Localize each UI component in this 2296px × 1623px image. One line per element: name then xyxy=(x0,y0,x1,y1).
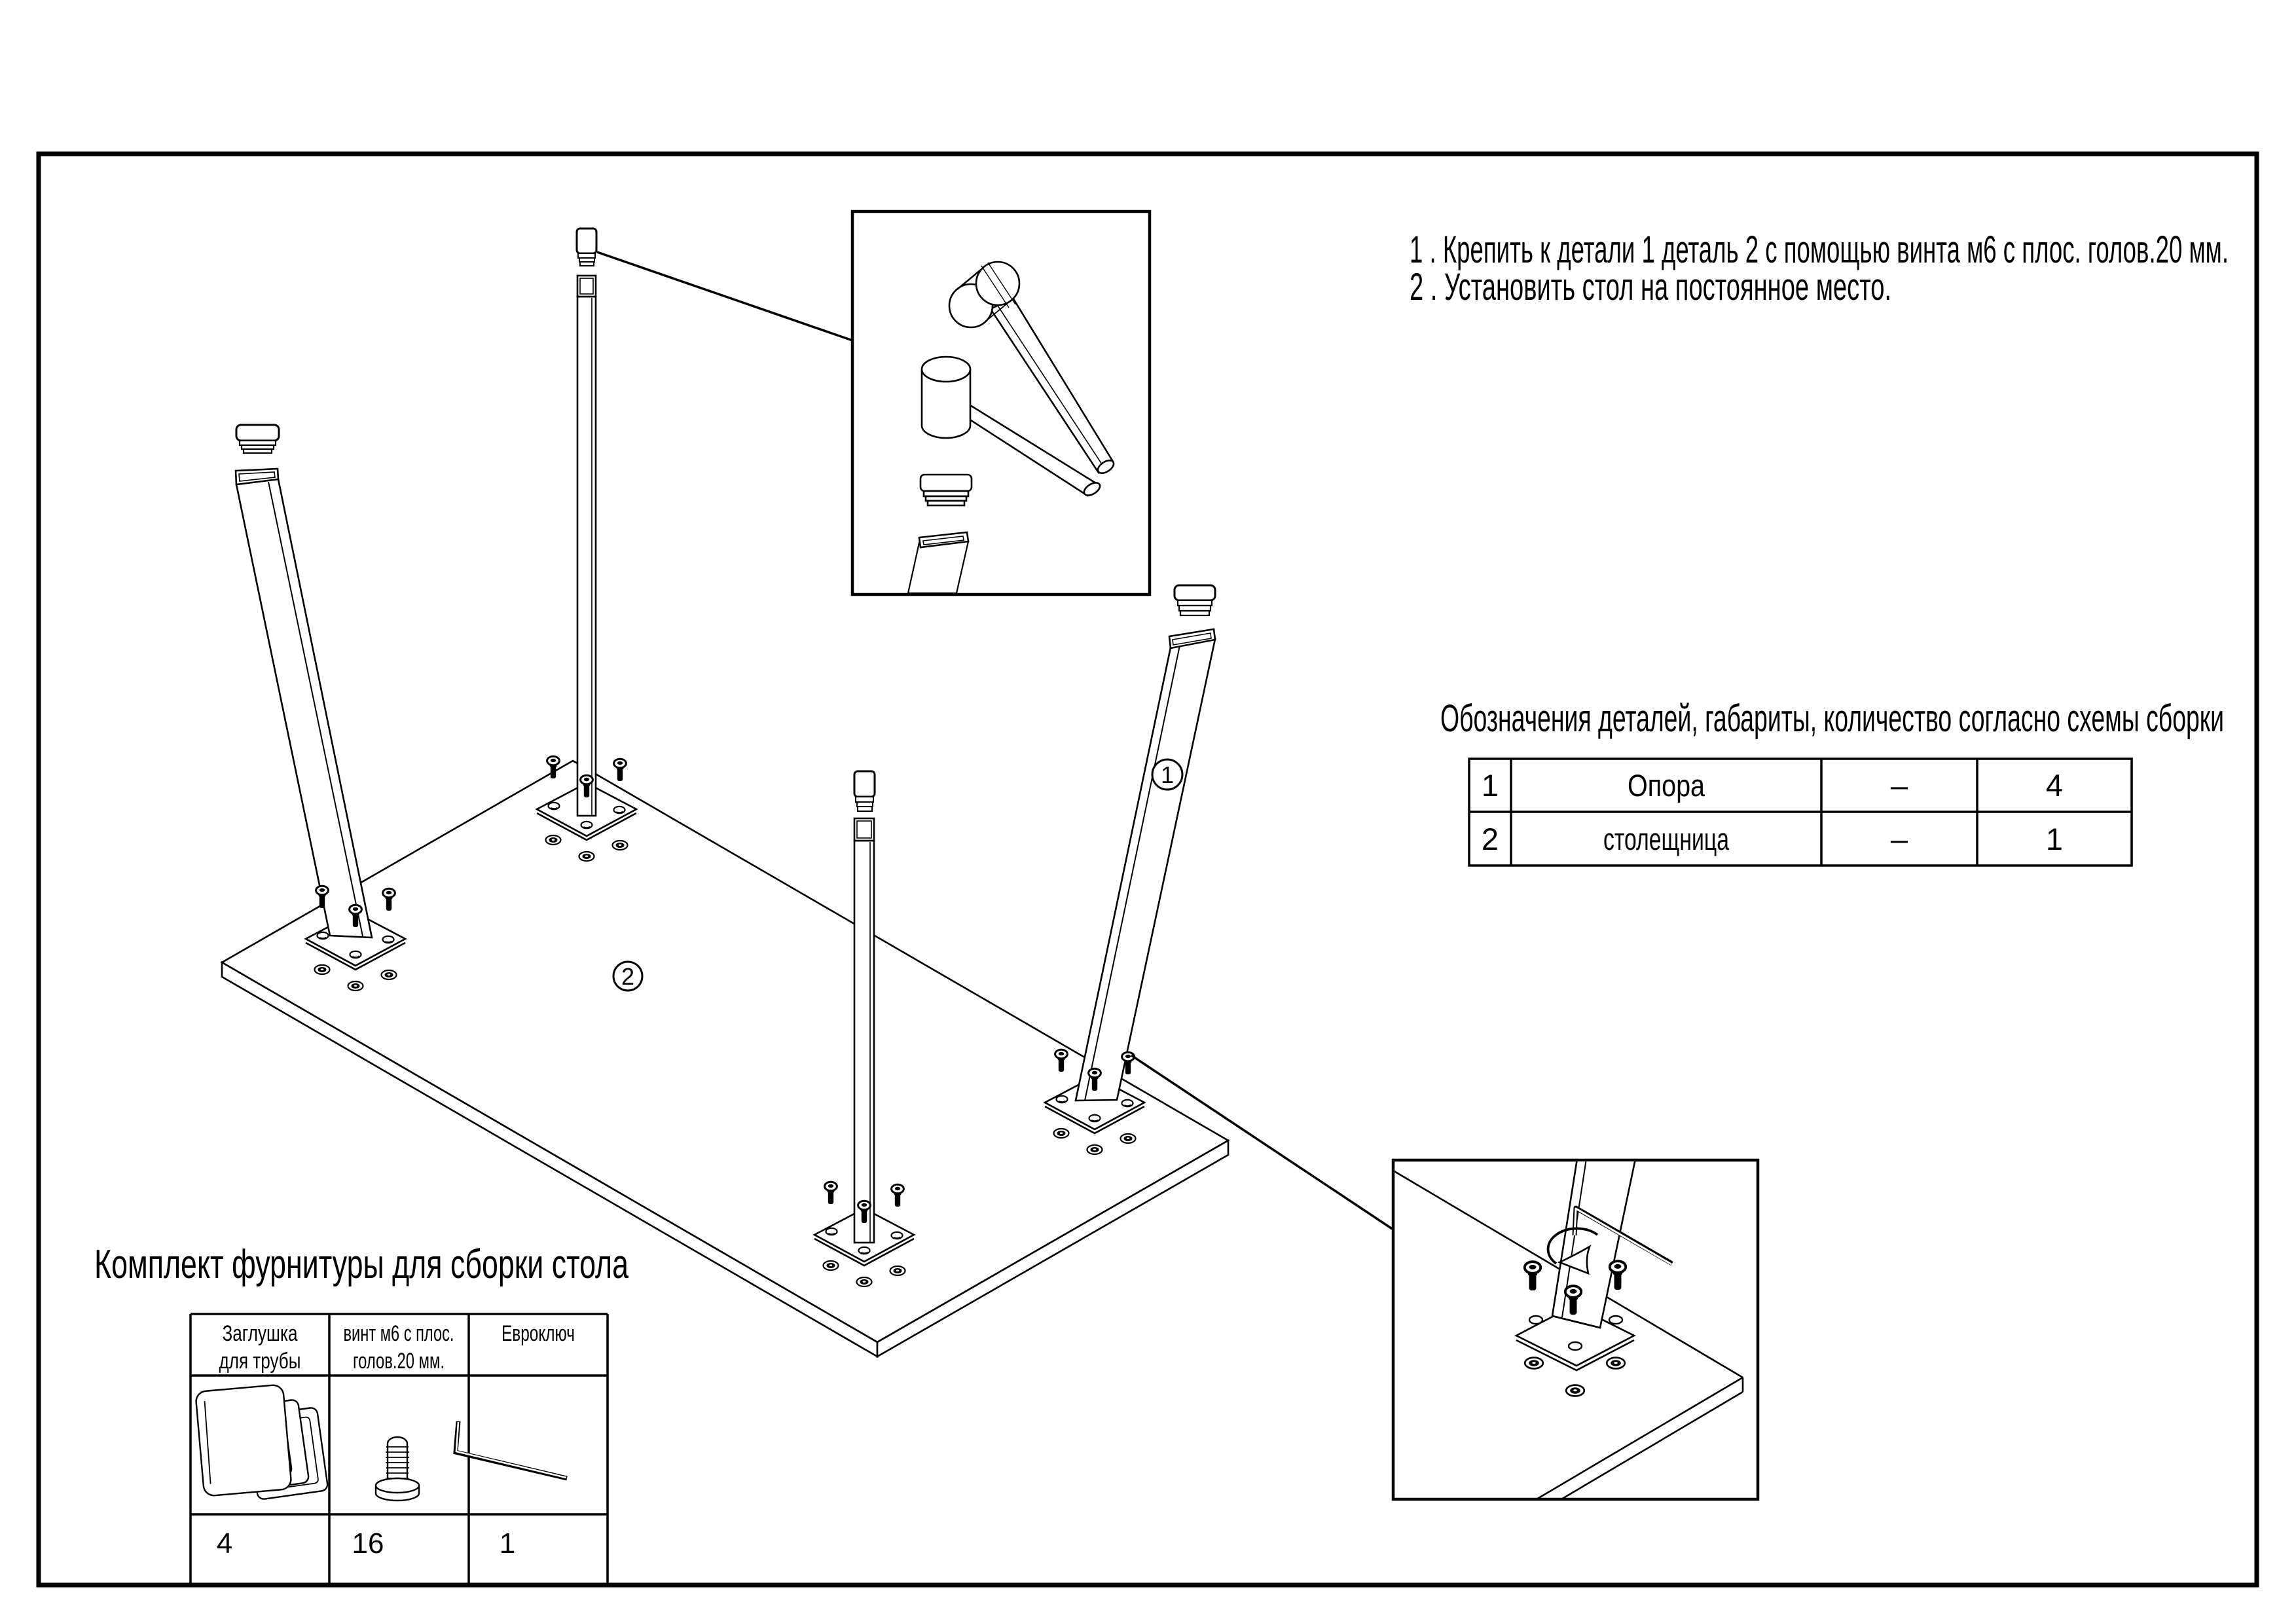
svg-text:1: 1 xyxy=(500,1527,515,1559)
svg-text:1: 1 xyxy=(2046,822,2063,856)
svg-text:16: 16 xyxy=(352,1527,384,1559)
svg-text:2 . Установить стол на постоян: 2 . Установить стол на постоянное место. xyxy=(1410,266,1891,308)
svg-text:1 . Крепить к детали 1 деталь: 1 . Крепить к детали 1 деталь 2 с помощь… xyxy=(1410,228,2229,271)
svg-text:Заглушка: Заглушка xyxy=(223,1321,298,1346)
svg-text:Евроключ: Евроключ xyxy=(501,1321,575,1346)
svg-text:1: 1 xyxy=(1161,761,1174,788)
svg-text:2: 2 xyxy=(621,963,634,990)
svg-text:столещница: столещница xyxy=(1603,822,1730,856)
svg-text:винт м6 с плос.: винт м6 с плос. xyxy=(344,1321,454,1346)
svg-text:Опора: Опора xyxy=(1628,768,1705,803)
svg-text:Обозначения деталей, габариты,: Обозначения деталей, габариты, количеств… xyxy=(1440,697,2224,740)
svg-text:Комплект фурнитуры для сборки: Комплект фурнитуры для сборки стола xyxy=(94,1242,629,1287)
svg-text:2: 2 xyxy=(1482,822,1499,856)
svg-text:4: 4 xyxy=(217,1527,232,1559)
svg-text:4: 4 xyxy=(2046,768,2063,803)
svg-text:1: 1 xyxy=(1482,768,1499,803)
svg-text:для трубы: для трубы xyxy=(219,1349,301,1374)
svg-text:голов.20 мм.: голов.20 мм. xyxy=(353,1349,445,1374)
svg-text:–: – xyxy=(1891,768,1908,803)
svg-text:–: – xyxy=(1891,822,1908,856)
